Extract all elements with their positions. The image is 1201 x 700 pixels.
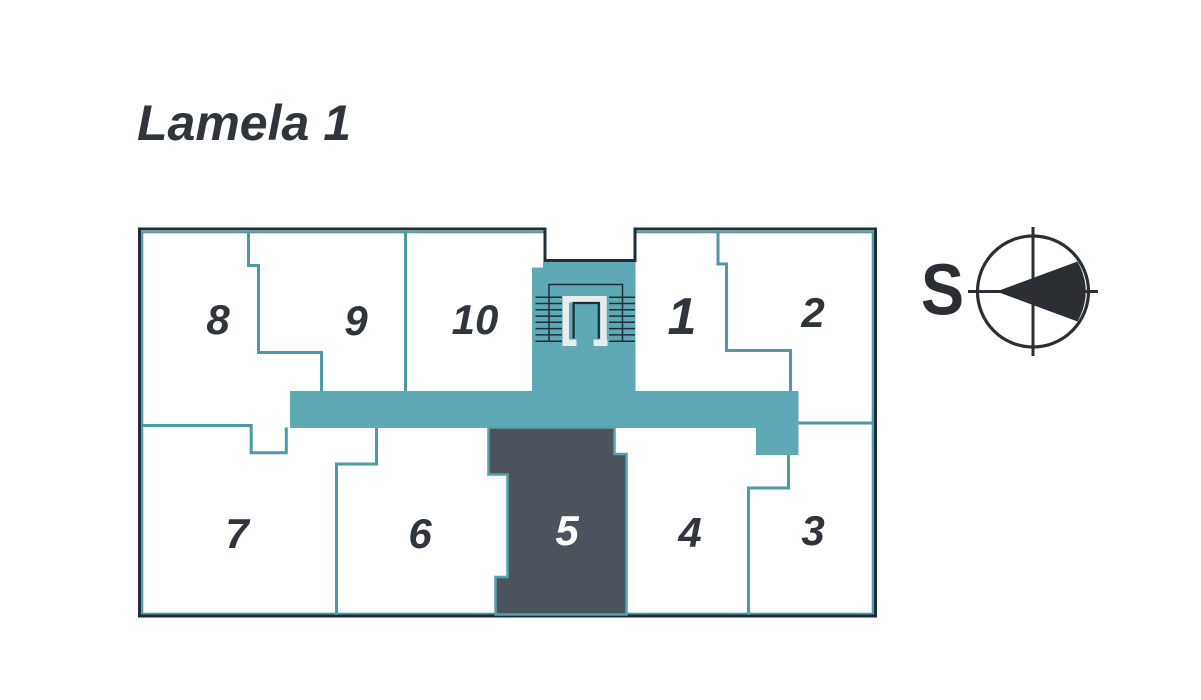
svg-text:8: 8 bbox=[206, 296, 230, 343]
svg-text:2: 2 bbox=[800, 289, 824, 336]
svg-text:4: 4 bbox=[677, 509, 701, 556]
svg-text:7: 7 bbox=[225, 510, 250, 557]
svg-text:9: 9 bbox=[344, 297, 368, 344]
svg-text:6: 6 bbox=[408, 510, 432, 557]
svg-text:S: S bbox=[921, 249, 964, 330]
svg-text:Lamela 1: Lamela 1 bbox=[137, 95, 351, 151]
svg-text:3: 3 bbox=[801, 507, 824, 554]
svg-text:5: 5 bbox=[555, 507, 579, 554]
svg-text:10: 10 bbox=[452, 296, 499, 343]
svg-text:1: 1 bbox=[668, 288, 697, 346]
